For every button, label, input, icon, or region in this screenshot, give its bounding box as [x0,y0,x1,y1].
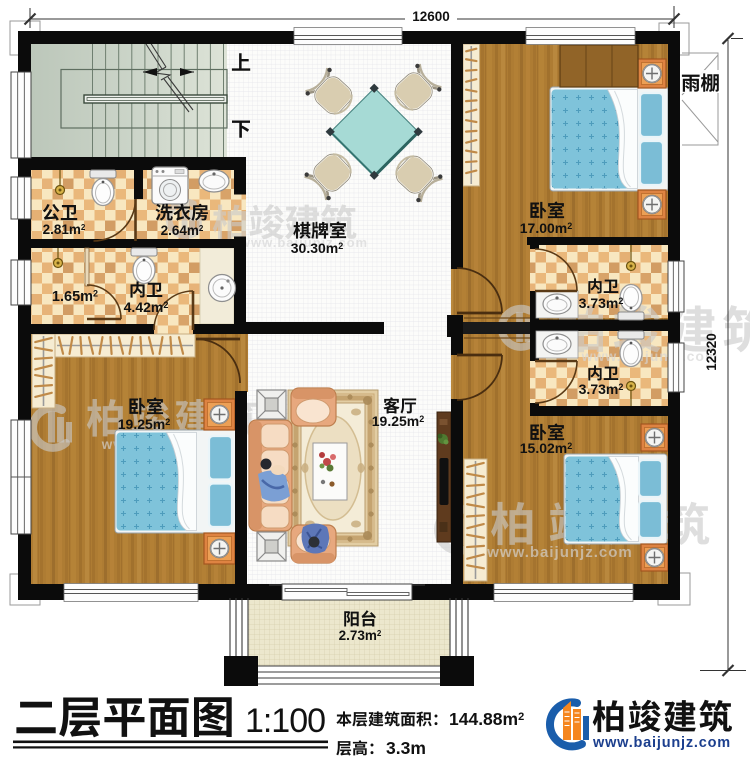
svg-text:19.25m2: 19.25m2 [118,416,171,432]
svg-text:4.42m2: 4.42m2 [124,299,169,315]
svg-text:1:100: 1:100 [245,702,325,740]
svg-text:30.30m2: 30.30m2 [291,240,344,256]
svg-text:3.3m: 3.3m [386,738,426,758]
svg-text:www.baijunjz.com: www.baijunjz.com [592,735,731,751]
svg-text:www.baijunjz.com: www.baijunjz.com [486,544,632,561]
svg-text:19.25m2: 19.25m2 [372,413,425,429]
svg-text:144.88m2: 144.88m2 [449,709,524,729]
svg-text:17.00m2: 17.00m2 [520,220,573,236]
svg-text:3.73m2: 3.73m2 [579,295,624,311]
svg-text:2.73m2: 2.73m2 [339,628,382,643]
svg-text:2.64m2: 2.64m2 [161,223,204,238]
svg-text:2.81m2: 2.81m2 [43,222,86,237]
svg-text:12600: 12600 [412,9,450,24]
svg-text:15.02m2: 15.02m2 [520,440,573,456]
svg-text:www.baijunjz.com: www.baijunjz.com [581,348,719,364]
svg-text:12320: 12320 [704,333,719,371]
svg-text:3.73m2: 3.73m2 [579,381,624,397]
svg-text:1.65m2: 1.65m2 [52,289,98,305]
